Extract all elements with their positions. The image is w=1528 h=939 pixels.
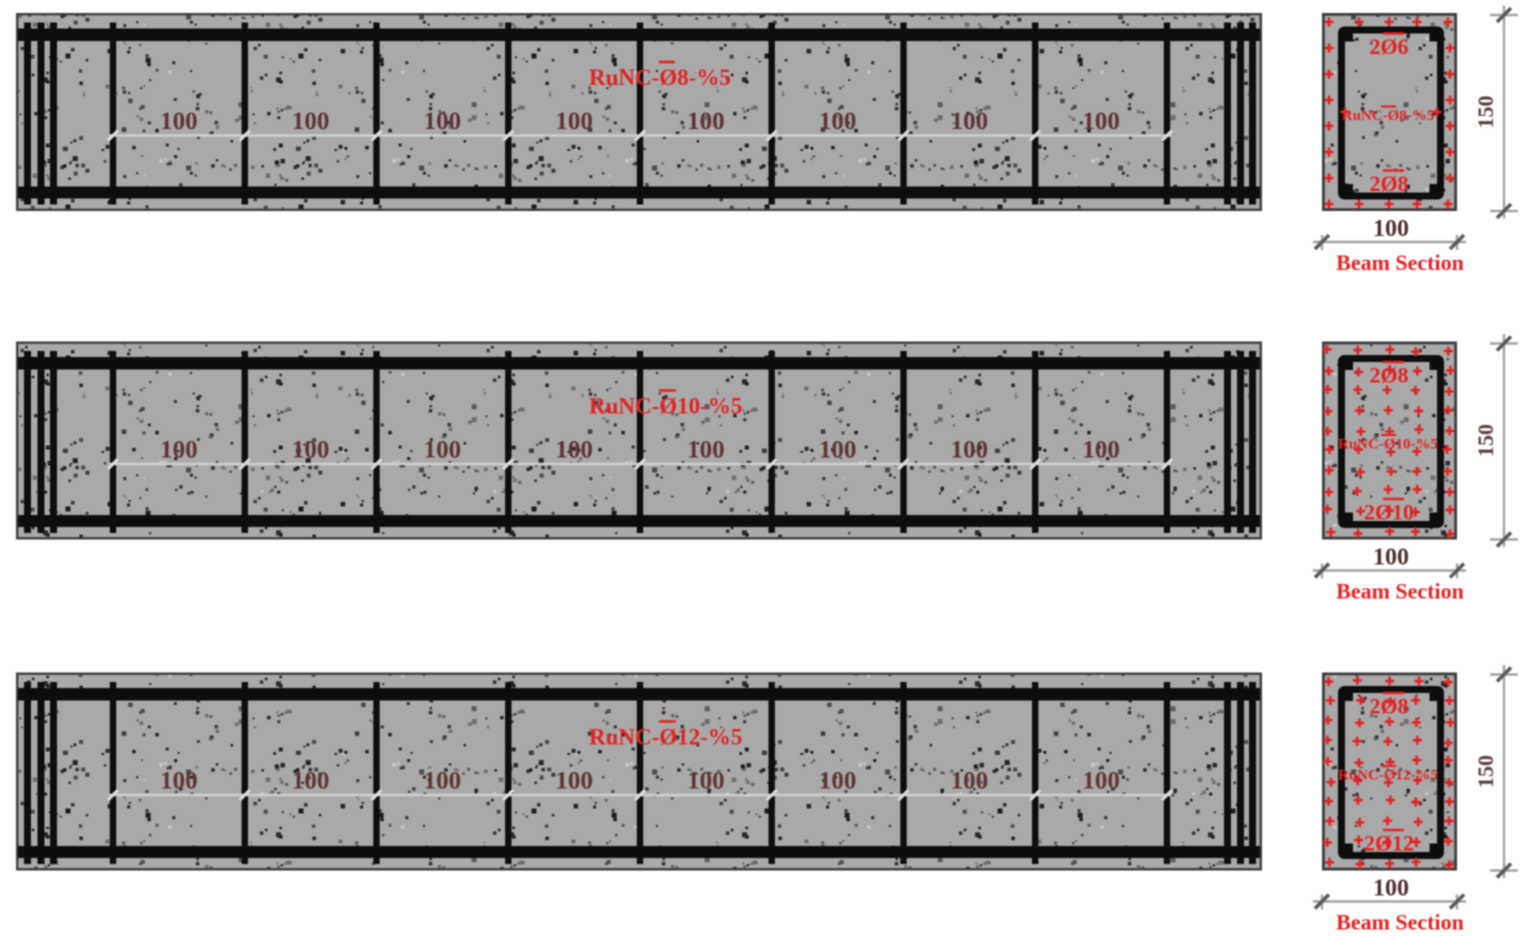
- svg-text:2Ø8: 2Ø8: [1369, 171, 1408, 196]
- svg-text:100: 100: [1373, 216, 1409, 242]
- svg-text:100: 100: [1082, 108, 1120, 135]
- svg-text:100: 100: [819, 108, 857, 135]
- svg-text:2Ø8: 2Ø8: [1369, 363, 1408, 388]
- svg-text:RuNC-Ø10-%5: RuNC-Ø10-%5: [1338, 437, 1438, 453]
- svg-text:Beam Section: Beam Section: [1336, 910, 1464, 935]
- svg-text:100: 100: [951, 437, 989, 464]
- svg-text:Beam Section: Beam Section: [1336, 579, 1464, 604]
- svg-text:100: 100: [292, 108, 330, 135]
- svg-text:Beam Section: Beam Section: [1336, 250, 1464, 275]
- svg-text:100: 100: [819, 768, 857, 795]
- svg-text:RuNC-Ø12-%5: RuNC-Ø12-%5: [1338, 768, 1438, 784]
- svg-text:2Ø8: 2Ø8: [1369, 694, 1408, 719]
- svg-text:2Ø12: 2Ø12: [1364, 831, 1414, 856]
- svg-text:100: 100: [1373, 876, 1409, 902]
- svg-text:150: 150: [1473, 96, 1498, 129]
- svg-text:100: 100: [687, 108, 725, 135]
- svg-text:100: 100: [555, 768, 593, 795]
- svg-text:RuNC-Ø8-%5: RuNC-Ø8-%5: [589, 65, 731, 90]
- svg-text:RuNC-Ø8-%5: RuNC-Ø8-%5: [1342, 108, 1435, 124]
- svg-text:100: 100: [424, 108, 462, 135]
- svg-text:100: 100: [687, 437, 725, 464]
- svg-text:100: 100: [687, 768, 725, 795]
- svg-text:100: 100: [1082, 437, 1120, 464]
- svg-text:100: 100: [292, 437, 330, 464]
- svg-text:150: 150: [1473, 424, 1498, 457]
- svg-text:100: 100: [424, 437, 462, 464]
- svg-text:100: 100: [160, 768, 198, 795]
- svg-text:100: 100: [555, 108, 593, 135]
- svg-text:100: 100: [160, 108, 198, 135]
- svg-text:100: 100: [160, 437, 198, 464]
- svg-text:100: 100: [1082, 768, 1120, 795]
- svg-text:RuNC-Ø10-%5: RuNC-Ø10-%5: [589, 394, 742, 419]
- svg-text:2Ø10: 2Ø10: [1364, 500, 1414, 525]
- svg-text:2Ø6: 2Ø6: [1369, 34, 1408, 59]
- svg-text:100: 100: [951, 108, 989, 135]
- svg-text:100: 100: [1373, 545, 1409, 571]
- svg-text:100: 100: [292, 768, 330, 795]
- svg-text:100: 100: [555, 437, 593, 464]
- svg-text:100: 100: [819, 437, 857, 464]
- svg-text:150: 150: [1473, 755, 1498, 788]
- svg-text:RuNC-Ø12-%5: RuNC-Ø12-%5: [589, 725, 742, 750]
- svg-text:100: 100: [951, 768, 989, 795]
- svg-text:100: 100: [424, 768, 462, 795]
